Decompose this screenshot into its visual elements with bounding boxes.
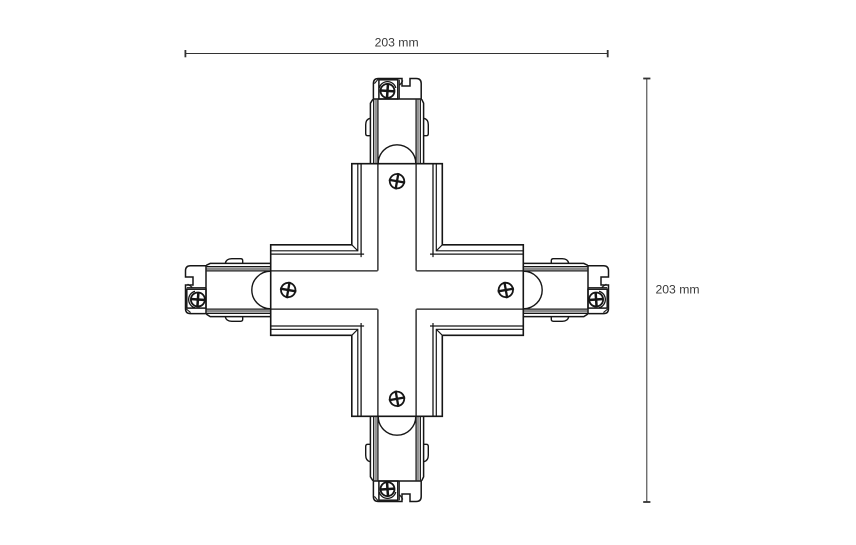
svg-text:203 mm: 203 mm bbox=[375, 35, 419, 49]
svg-text:203 mm: 203 mm bbox=[656, 283, 700, 297]
